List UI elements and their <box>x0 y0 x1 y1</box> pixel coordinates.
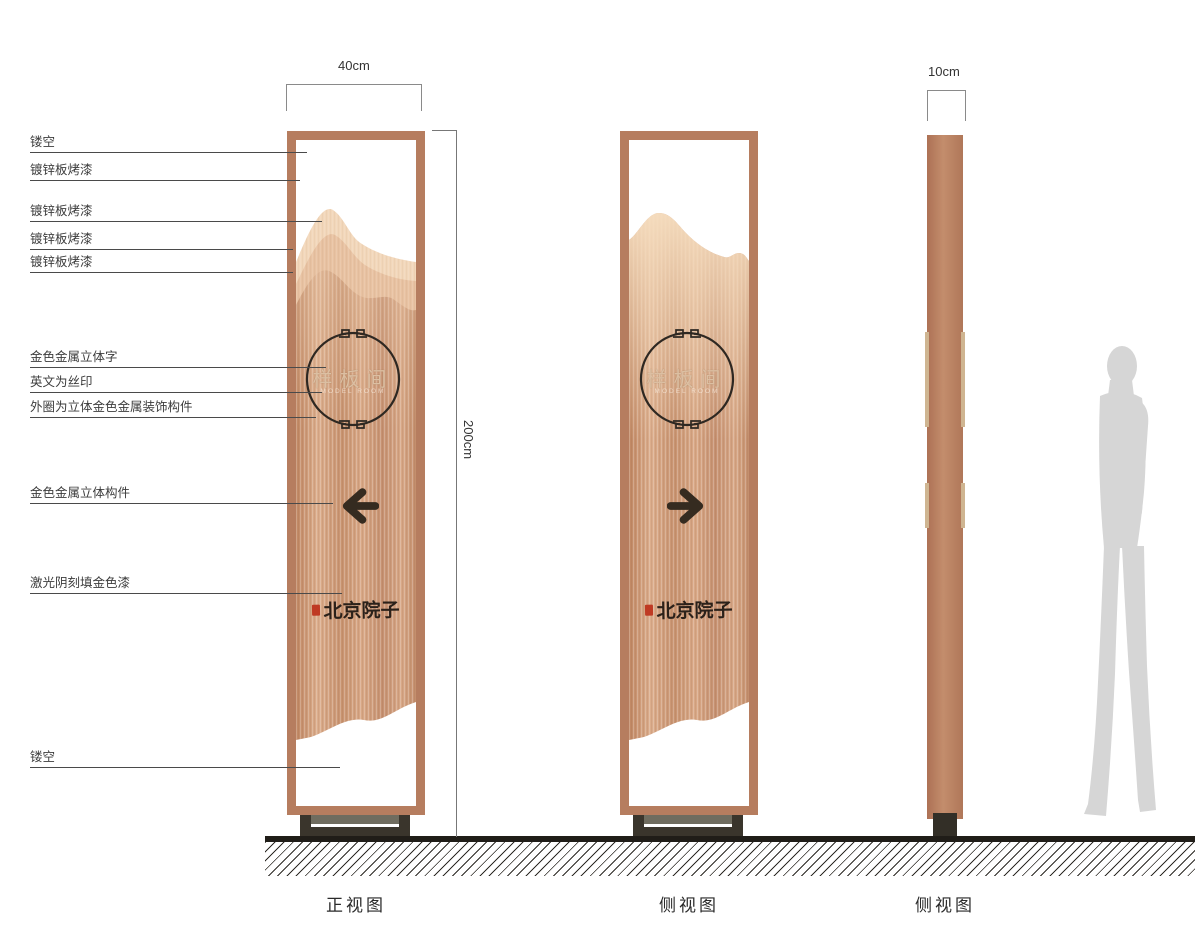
annotation-hollow-bottom: 镂空 <box>30 750 340 768</box>
annotation-galvanized-1: 镀锌板烤漆 <box>30 163 300 181</box>
front-brand-logo: 北京院子 <box>298 595 414 624</box>
annotation-hollow-top: 镂空 <box>30 135 307 153</box>
front-pillar-artwork <box>296 140 416 806</box>
dim-front-width-bracket <box>286 84 422 111</box>
profile-base-block <box>933 813 957 838</box>
dim-side-width-label: 10cm <box>928 64 960 79</box>
annotation-outer-ring: 外圈为立体金色金属装饰构件 <box>30 400 316 418</box>
annotation-gold-component: 金色金属立体构件 <box>30 486 333 504</box>
dim-height-label: 200cm <box>461 420 476 459</box>
annotation-laser-engraved: 激光阴刻填金色漆 <box>30 576 342 594</box>
person-silhouette <box>1040 342 1172 844</box>
arrow-left-icon <box>333 486 379 526</box>
dim-side-width-bracket <box>927 90 966 121</box>
design-drawing-canvas: 镂空 镀锌板烤漆 镀锌板烤漆 镀锌板烤漆 镀锌板烤漆 金色金属立体字 英文为丝印… <box>0 0 1195 927</box>
brand-text: 北京院子 <box>323 599 399 622</box>
front-view-pillar <box>287 131 425 815</box>
side-brand-logo: 北京院子 <box>631 595 747 624</box>
annotation-galvanized-2: 镀锌板烤漆 <box>30 204 322 222</box>
annotation-gold-letters: 金色金属立体字 <box>30 350 326 368</box>
dim-front-width-label: 40cm <box>338 58 370 73</box>
view-label-side2: 侧视图 <box>876 891 1014 916</box>
side-view-pillar <box>620 131 758 815</box>
side-pillar-artwork <box>629 140 749 806</box>
profile-arrow-protrusion-right <box>961 483 965 528</box>
ground-hatching <box>265 842 1195 876</box>
arrow-right-icon <box>667 486 713 526</box>
annotation-galvanized-3: 镀锌板烤漆 <box>30 232 293 250</box>
seal-icon <box>312 605 320 616</box>
view-label-front: 正视图 <box>287 891 425 916</box>
dim-height-line <box>456 131 457 837</box>
annotation-silkscreen: 英文为丝印 <box>30 375 322 393</box>
front-base-mid <box>311 815 399 824</box>
dim-height-tick <box>432 130 457 131</box>
annotation-galvanized-4: 镀锌板烤漆 <box>30 255 293 273</box>
side-room-name-en: MODEL ROOM <box>632 388 742 395</box>
profile-ring-protrusion-right <box>961 332 965 427</box>
profile-arrow-protrusion-left <box>925 483 929 528</box>
side-base-mid <box>644 815 732 824</box>
view-label-side1: 侧视图 <box>620 891 758 916</box>
brand-text: 北京院子 <box>656 599 732 622</box>
profile-view-pillar <box>927 135 963 819</box>
profile-ring-protrusion-left <box>925 332 929 427</box>
seal-icon <box>645 605 653 616</box>
